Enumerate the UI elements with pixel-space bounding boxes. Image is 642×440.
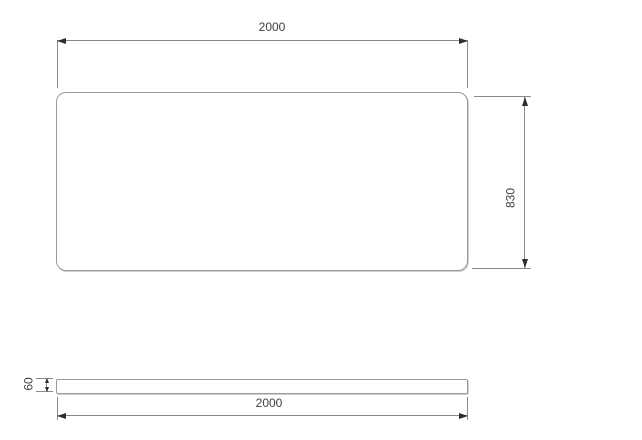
extension-line-right [467, 40, 468, 88]
arrowhead-left-icon [57, 38, 66, 44]
dimension-line [57, 415, 468, 416]
side-view-panel-outline [56, 379, 468, 394]
arrowhead-left-icon [57, 413, 66, 419]
bottom-width-label: 2000 [256, 397, 283, 410]
extension-line-left [57, 40, 58, 88]
top-view-panel-outline [56, 92, 468, 271]
dimension-line [57, 40, 468, 41]
arrowhead-right-icon [459, 38, 468, 44]
arrowhead-down-icon [45, 387, 49, 392]
extension-line-bottom [472, 268, 531, 269]
arrowhead-down-icon [522, 259, 528, 268]
arrowhead-up-icon [522, 97, 528, 106]
height-label: 830 [505, 188, 518, 208]
arrowhead-right-icon [459, 413, 468, 419]
top-width-label: 2000 [259, 21, 286, 34]
drawing-canvas: 2000 830 60 2000 [0, 0, 642, 440]
arrowhead-up-icon [45, 378, 49, 383]
thickness-label: 60 [23, 377, 36, 390]
dimension-line [524, 97, 525, 268]
